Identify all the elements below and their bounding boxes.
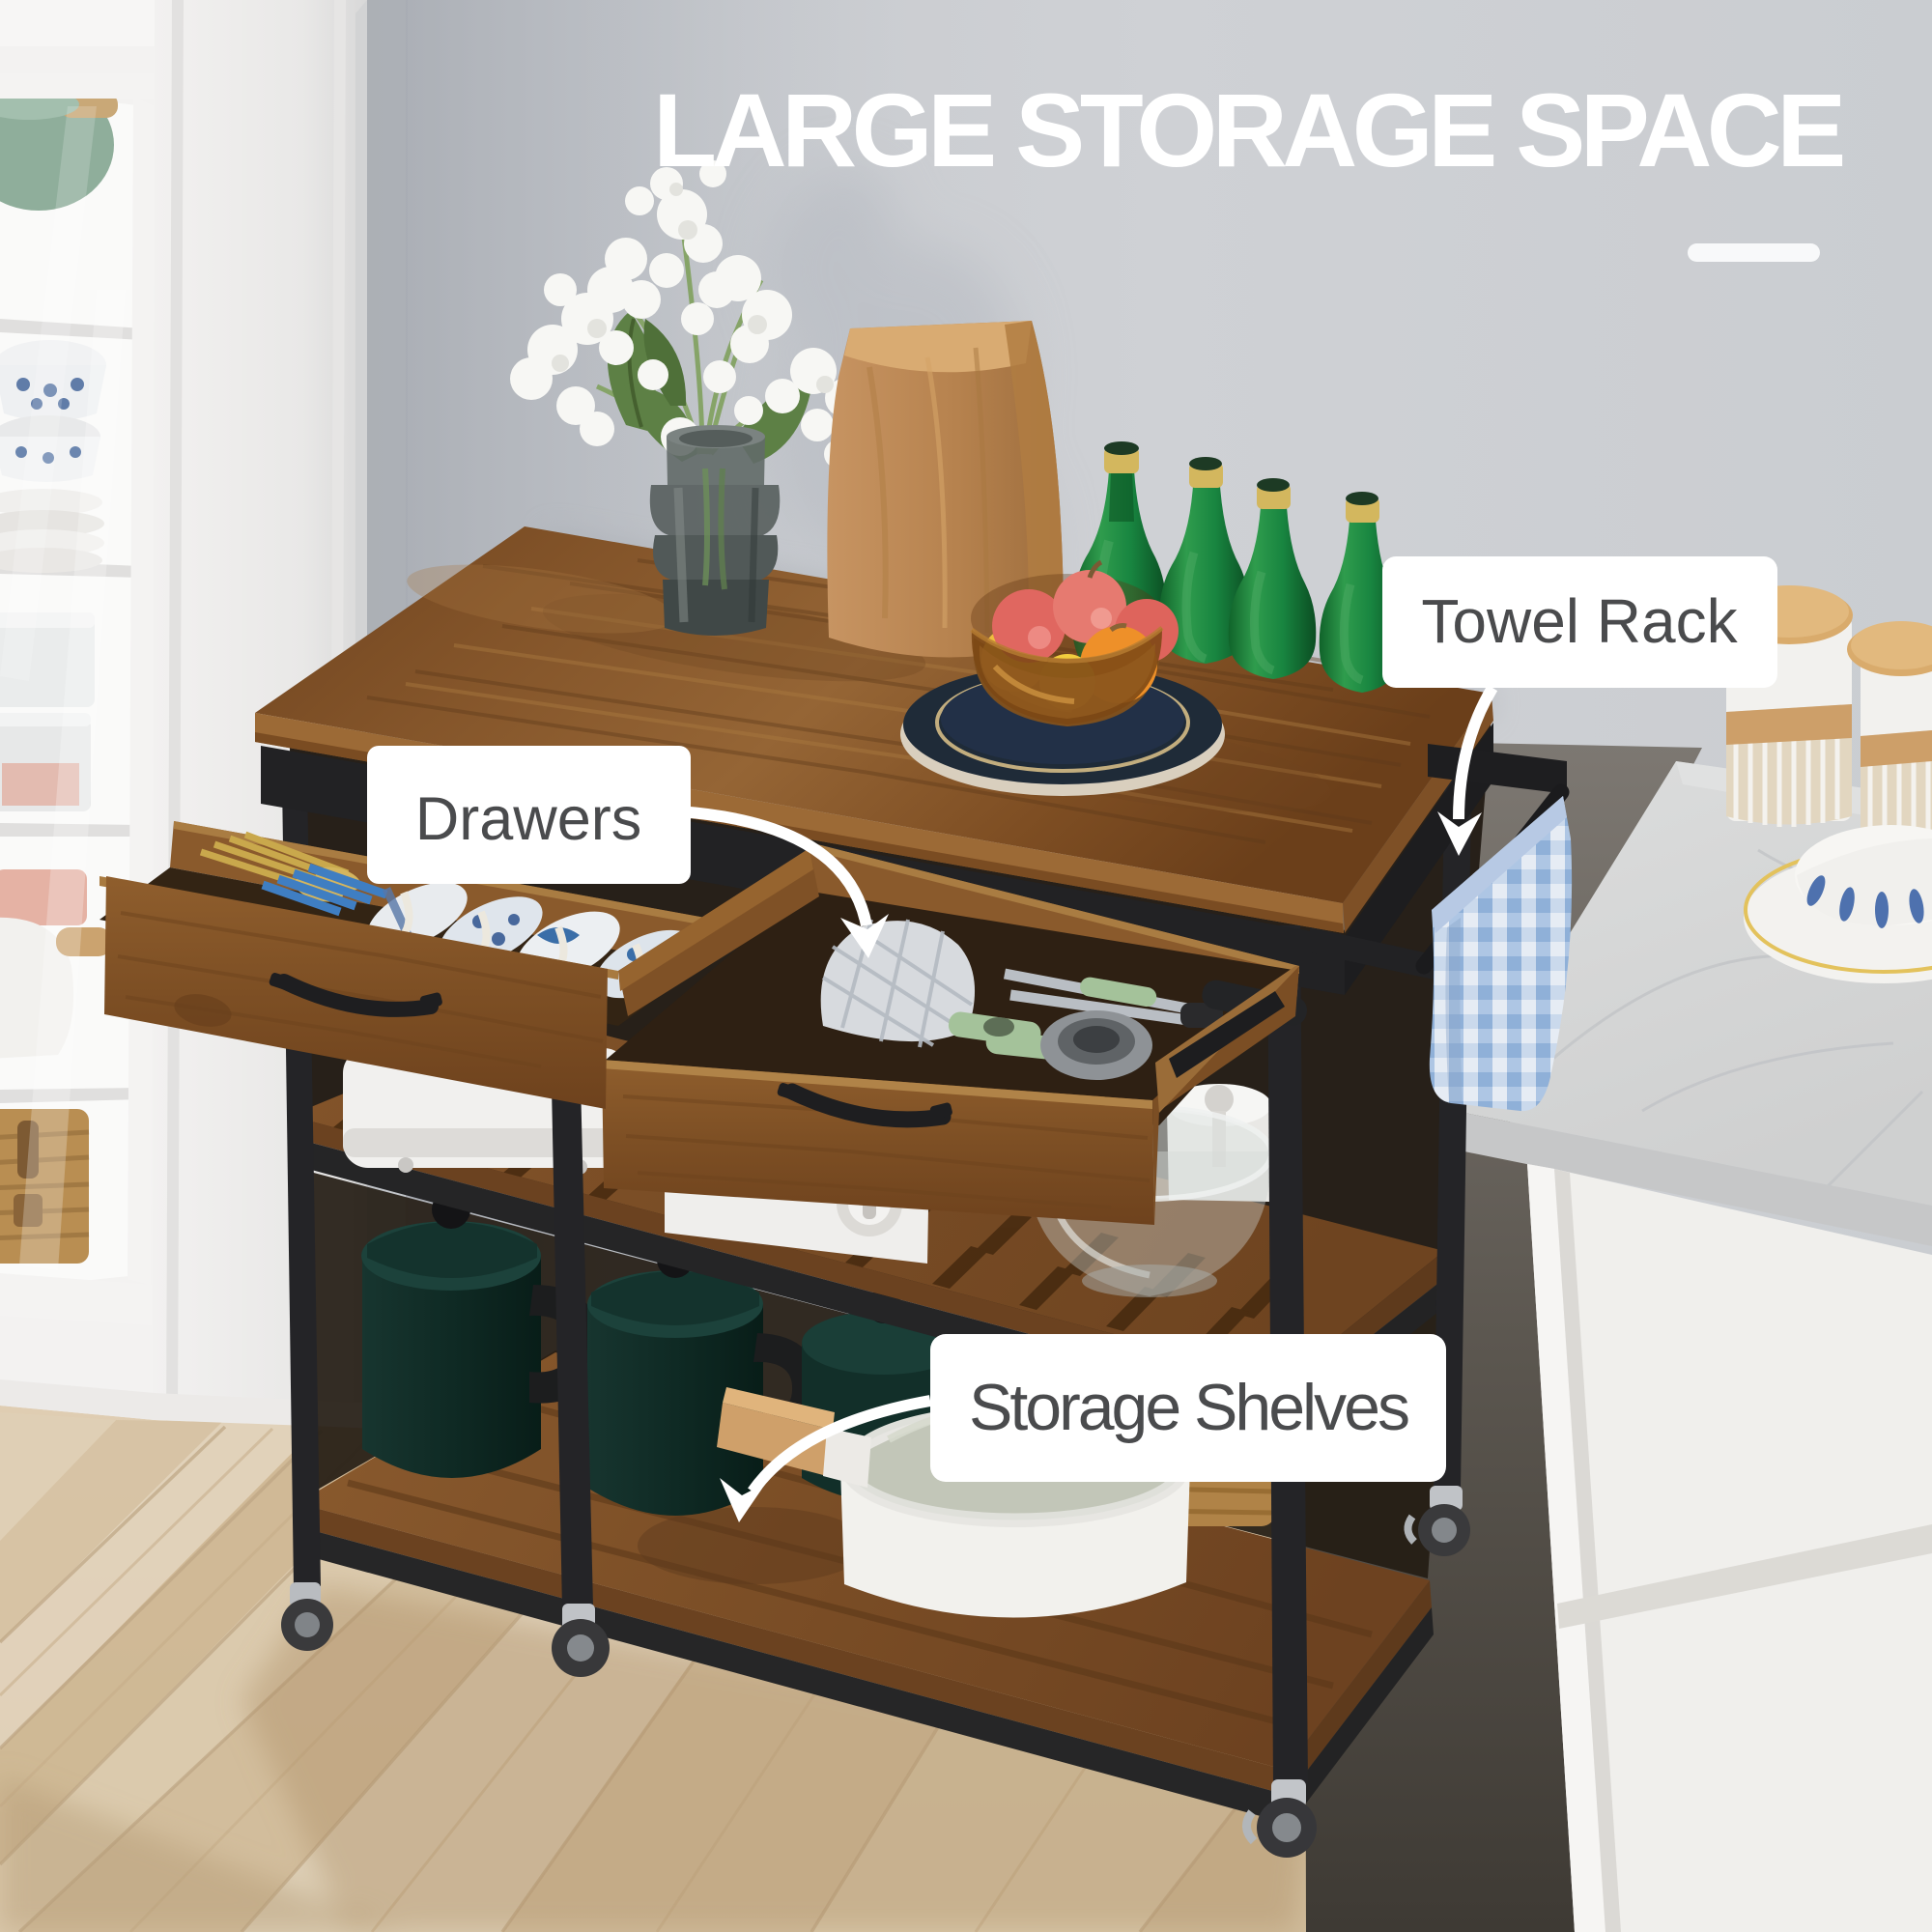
svg-text:Storage Shelves: Storage Shelves — [969, 1371, 1408, 1444]
svg-text:Towel Rack: Towel Rack — [1421, 586, 1738, 656]
svg-text:LARGE STORAGE SPACE: LARGE STORAGE SPACE — [653, 71, 1842, 188]
svg-text:Drawers: Drawers — [415, 785, 642, 853]
